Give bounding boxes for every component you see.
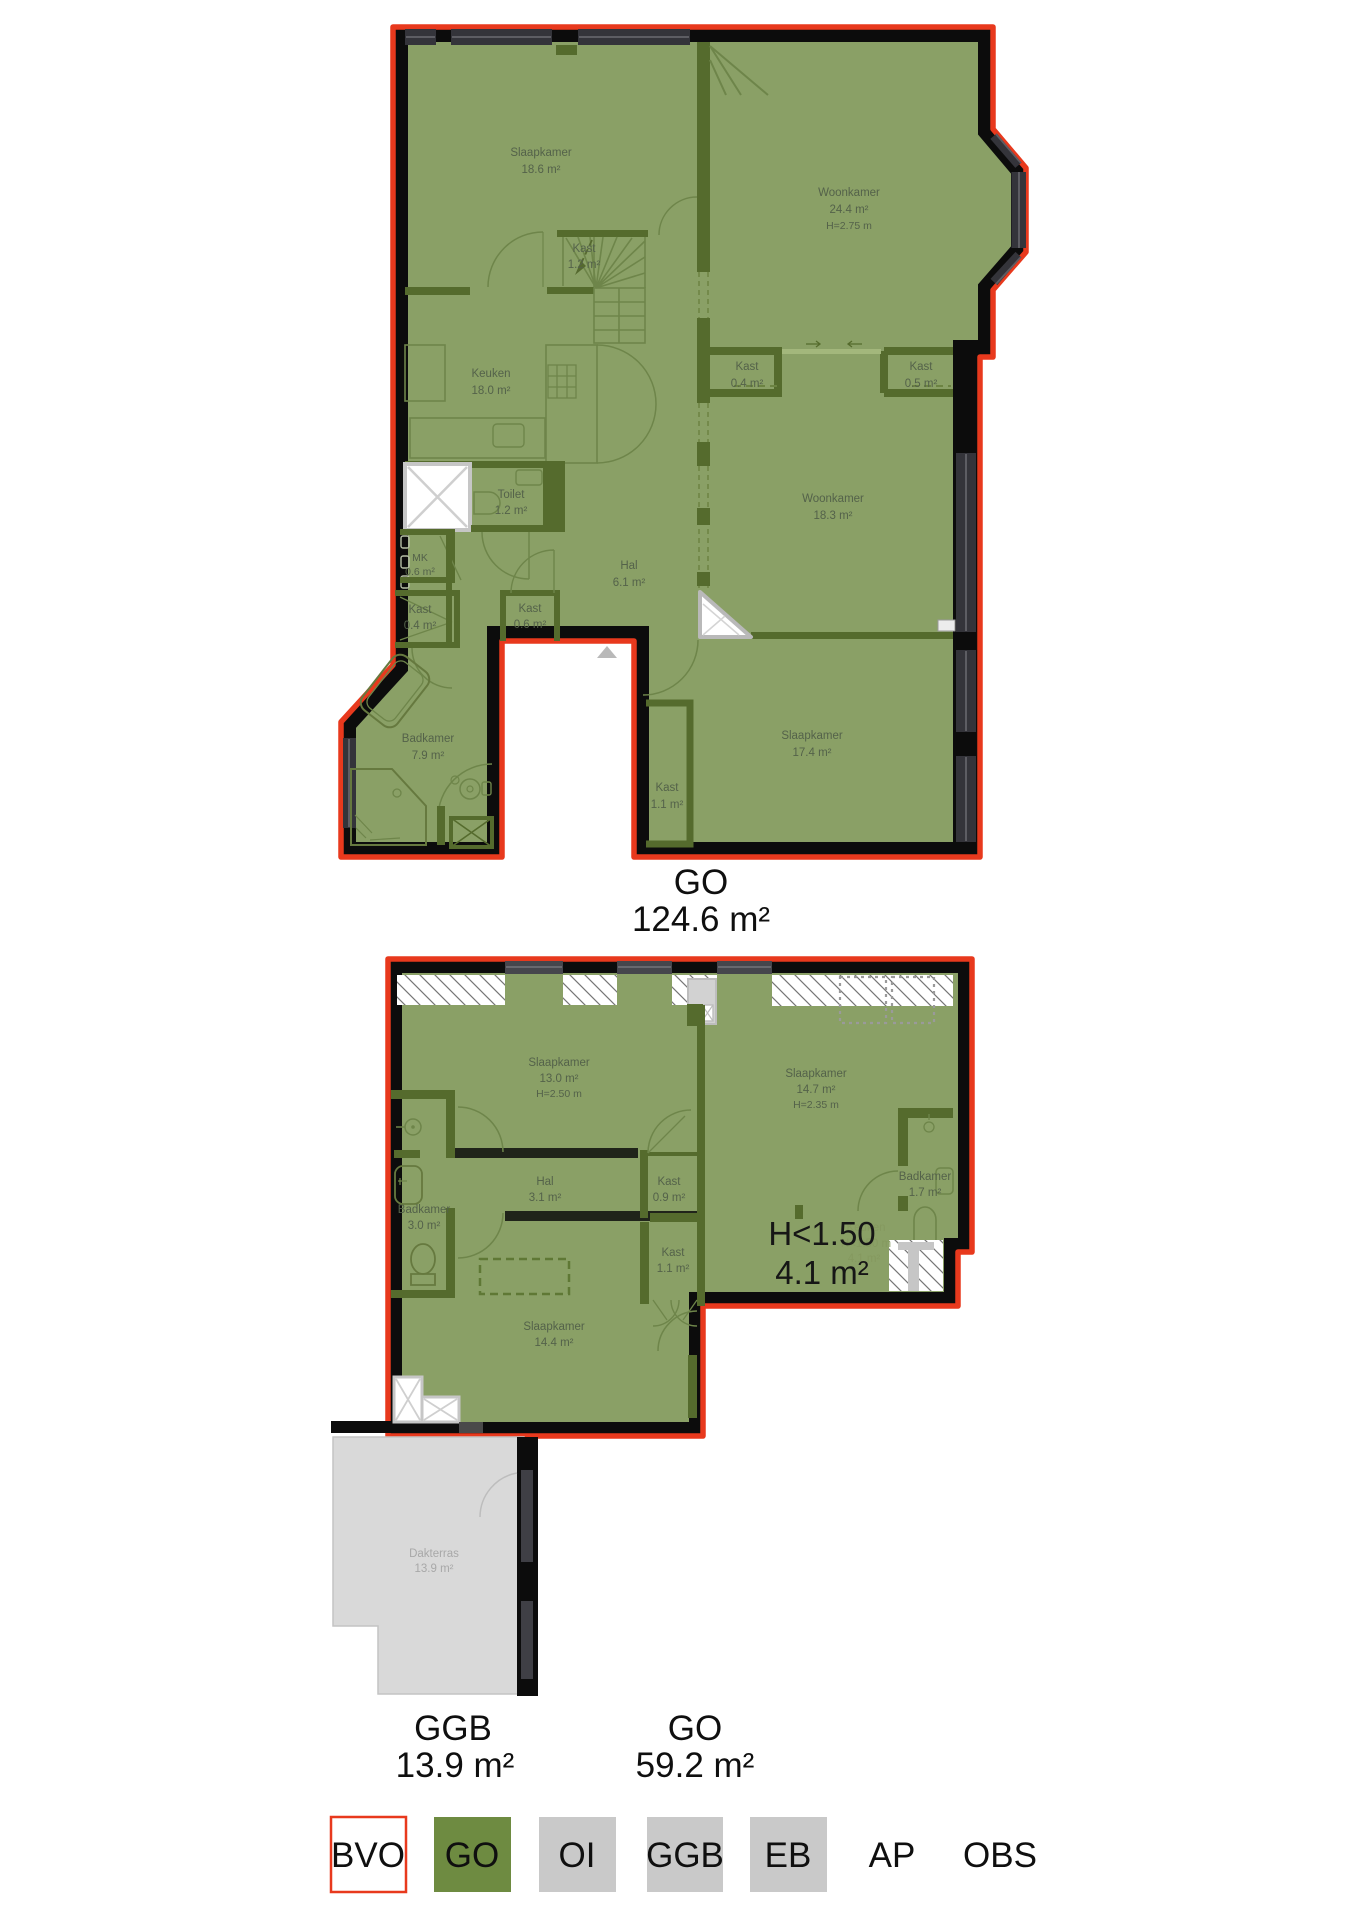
svg-text:13.9 m²: 13.9 m² bbox=[396, 1746, 515, 1785]
svg-text:0.6 m²: 0.6 m² bbox=[405, 566, 435, 578]
svg-text:13.9 m²: 13.9 m² bbox=[415, 1563, 454, 1575]
svg-text:Slaapkamer: Slaapkamer bbox=[785, 1068, 847, 1080]
svg-text:OI: OI bbox=[559, 1836, 596, 1875]
svg-text:EB: EB bbox=[765, 1836, 812, 1875]
svg-text:0.4 m²: 0.4 m² bbox=[731, 378, 764, 390]
svg-text:Badkamer: Badkamer bbox=[899, 1171, 952, 1183]
svg-text:6.1 m²: 6.1 m² bbox=[613, 577, 646, 589]
svg-text:Kast: Kast bbox=[909, 361, 933, 373]
svg-text:Keuken: Keuken bbox=[471, 368, 510, 380]
svg-text:7.9 m²: 7.9 m² bbox=[412, 750, 445, 762]
svg-text:Hal: Hal bbox=[620, 560, 637, 572]
svg-text:H<1.50: H<1.50 bbox=[768, 1215, 875, 1252]
svg-text:59.2 m²: 59.2 m² bbox=[636, 1746, 755, 1785]
svg-text:Toilet: Toilet bbox=[498, 489, 526, 501]
svg-text:Kast: Kast bbox=[408, 604, 432, 616]
svg-text:3.1 m²: 3.1 m² bbox=[529, 1192, 562, 1204]
svg-text:24.4 m²: 24.4 m² bbox=[830, 204, 869, 216]
svg-text:BVO: BVO bbox=[331, 1836, 405, 1875]
svg-text:1.2 m²: 1.2 m² bbox=[495, 505, 528, 517]
svg-text:14.4 m²: 14.4 m² bbox=[535, 1337, 574, 1349]
svg-text:GGB: GGB bbox=[414, 1709, 492, 1748]
svg-text:3.0 m²: 3.0 m² bbox=[408, 1220, 441, 1232]
svg-text:GGB: GGB bbox=[646, 1836, 724, 1875]
svg-text:H=2.35 m: H=2.35 m bbox=[793, 1099, 839, 1111]
svg-text:Kast: Kast bbox=[657, 1176, 681, 1188]
svg-text:Kast: Kast bbox=[518, 603, 542, 615]
svg-text:Slaapkamer: Slaapkamer bbox=[528, 1057, 590, 1069]
svg-text:1.1 m²: 1.1 m² bbox=[657, 1263, 690, 1275]
svg-text:MK: MK bbox=[412, 552, 428, 564]
svg-text:Slaapkamer: Slaapkamer bbox=[510, 147, 572, 159]
svg-text:18.6 m²: 18.6 m² bbox=[522, 164, 561, 176]
svg-text:14.7 m²: 14.7 m² bbox=[797, 1084, 836, 1096]
svg-text:18.3 m²: 18.3 m² bbox=[814, 510, 853, 522]
svg-text:GO: GO bbox=[674, 863, 728, 902]
svg-text:GO: GO bbox=[445, 1836, 499, 1875]
svg-text:Kast: Kast bbox=[661, 1247, 685, 1259]
svg-text:Woonkamer: Woonkamer bbox=[818, 187, 880, 199]
svg-text:1.7 m²: 1.7 m² bbox=[909, 1187, 942, 1199]
svg-text:Woonkamer: Woonkamer bbox=[802, 493, 864, 505]
svg-text:Kast: Kast bbox=[655, 782, 679, 794]
svg-text:H=2.75 m: H=2.75 m bbox=[826, 220, 872, 232]
svg-text:0.9 m²: 0.9 m² bbox=[653, 1192, 686, 1204]
svg-text:Badkamer: Badkamer bbox=[402, 733, 455, 745]
svg-text:17.4 m²: 17.4 m² bbox=[793, 747, 832, 759]
svg-text:0.5 m²: 0.5 m² bbox=[905, 378, 938, 390]
svg-text:1.2 m²: 1.2 m² bbox=[568, 259, 601, 271]
svg-text:H=2.50 m: H=2.50 m bbox=[536, 1088, 582, 1100]
svg-text:18.0 m²: 18.0 m² bbox=[472, 385, 511, 397]
svg-text:1.1 m²: 1.1 m² bbox=[651, 799, 684, 811]
svg-text:GO: GO bbox=[668, 1709, 722, 1748]
svg-text:Kast: Kast bbox=[572, 243, 596, 255]
svg-text:4.1 m²: 4.1 m² bbox=[775, 1254, 869, 1291]
svg-text:0.6 m²: 0.6 m² bbox=[514, 619, 547, 631]
svg-text:124.6 m²: 124.6 m² bbox=[632, 900, 770, 939]
svg-text:Badkamer: Badkamer bbox=[398, 1204, 451, 1216]
svg-text:Dakterras: Dakterras bbox=[409, 1548, 459, 1560]
svg-text:0.4 m²: 0.4 m² bbox=[404, 620, 437, 632]
svg-text:Slaapkamer: Slaapkamer bbox=[523, 1321, 585, 1333]
svg-text:Slaapkamer: Slaapkamer bbox=[781, 730, 843, 742]
svg-text:OBS: OBS bbox=[963, 1836, 1037, 1875]
svg-text:Hal: Hal bbox=[536, 1176, 553, 1188]
svg-text:13.0 m²: 13.0 m² bbox=[540, 1073, 579, 1085]
svg-text:Kast: Kast bbox=[735, 361, 759, 373]
svg-text:AP: AP bbox=[869, 1836, 916, 1875]
